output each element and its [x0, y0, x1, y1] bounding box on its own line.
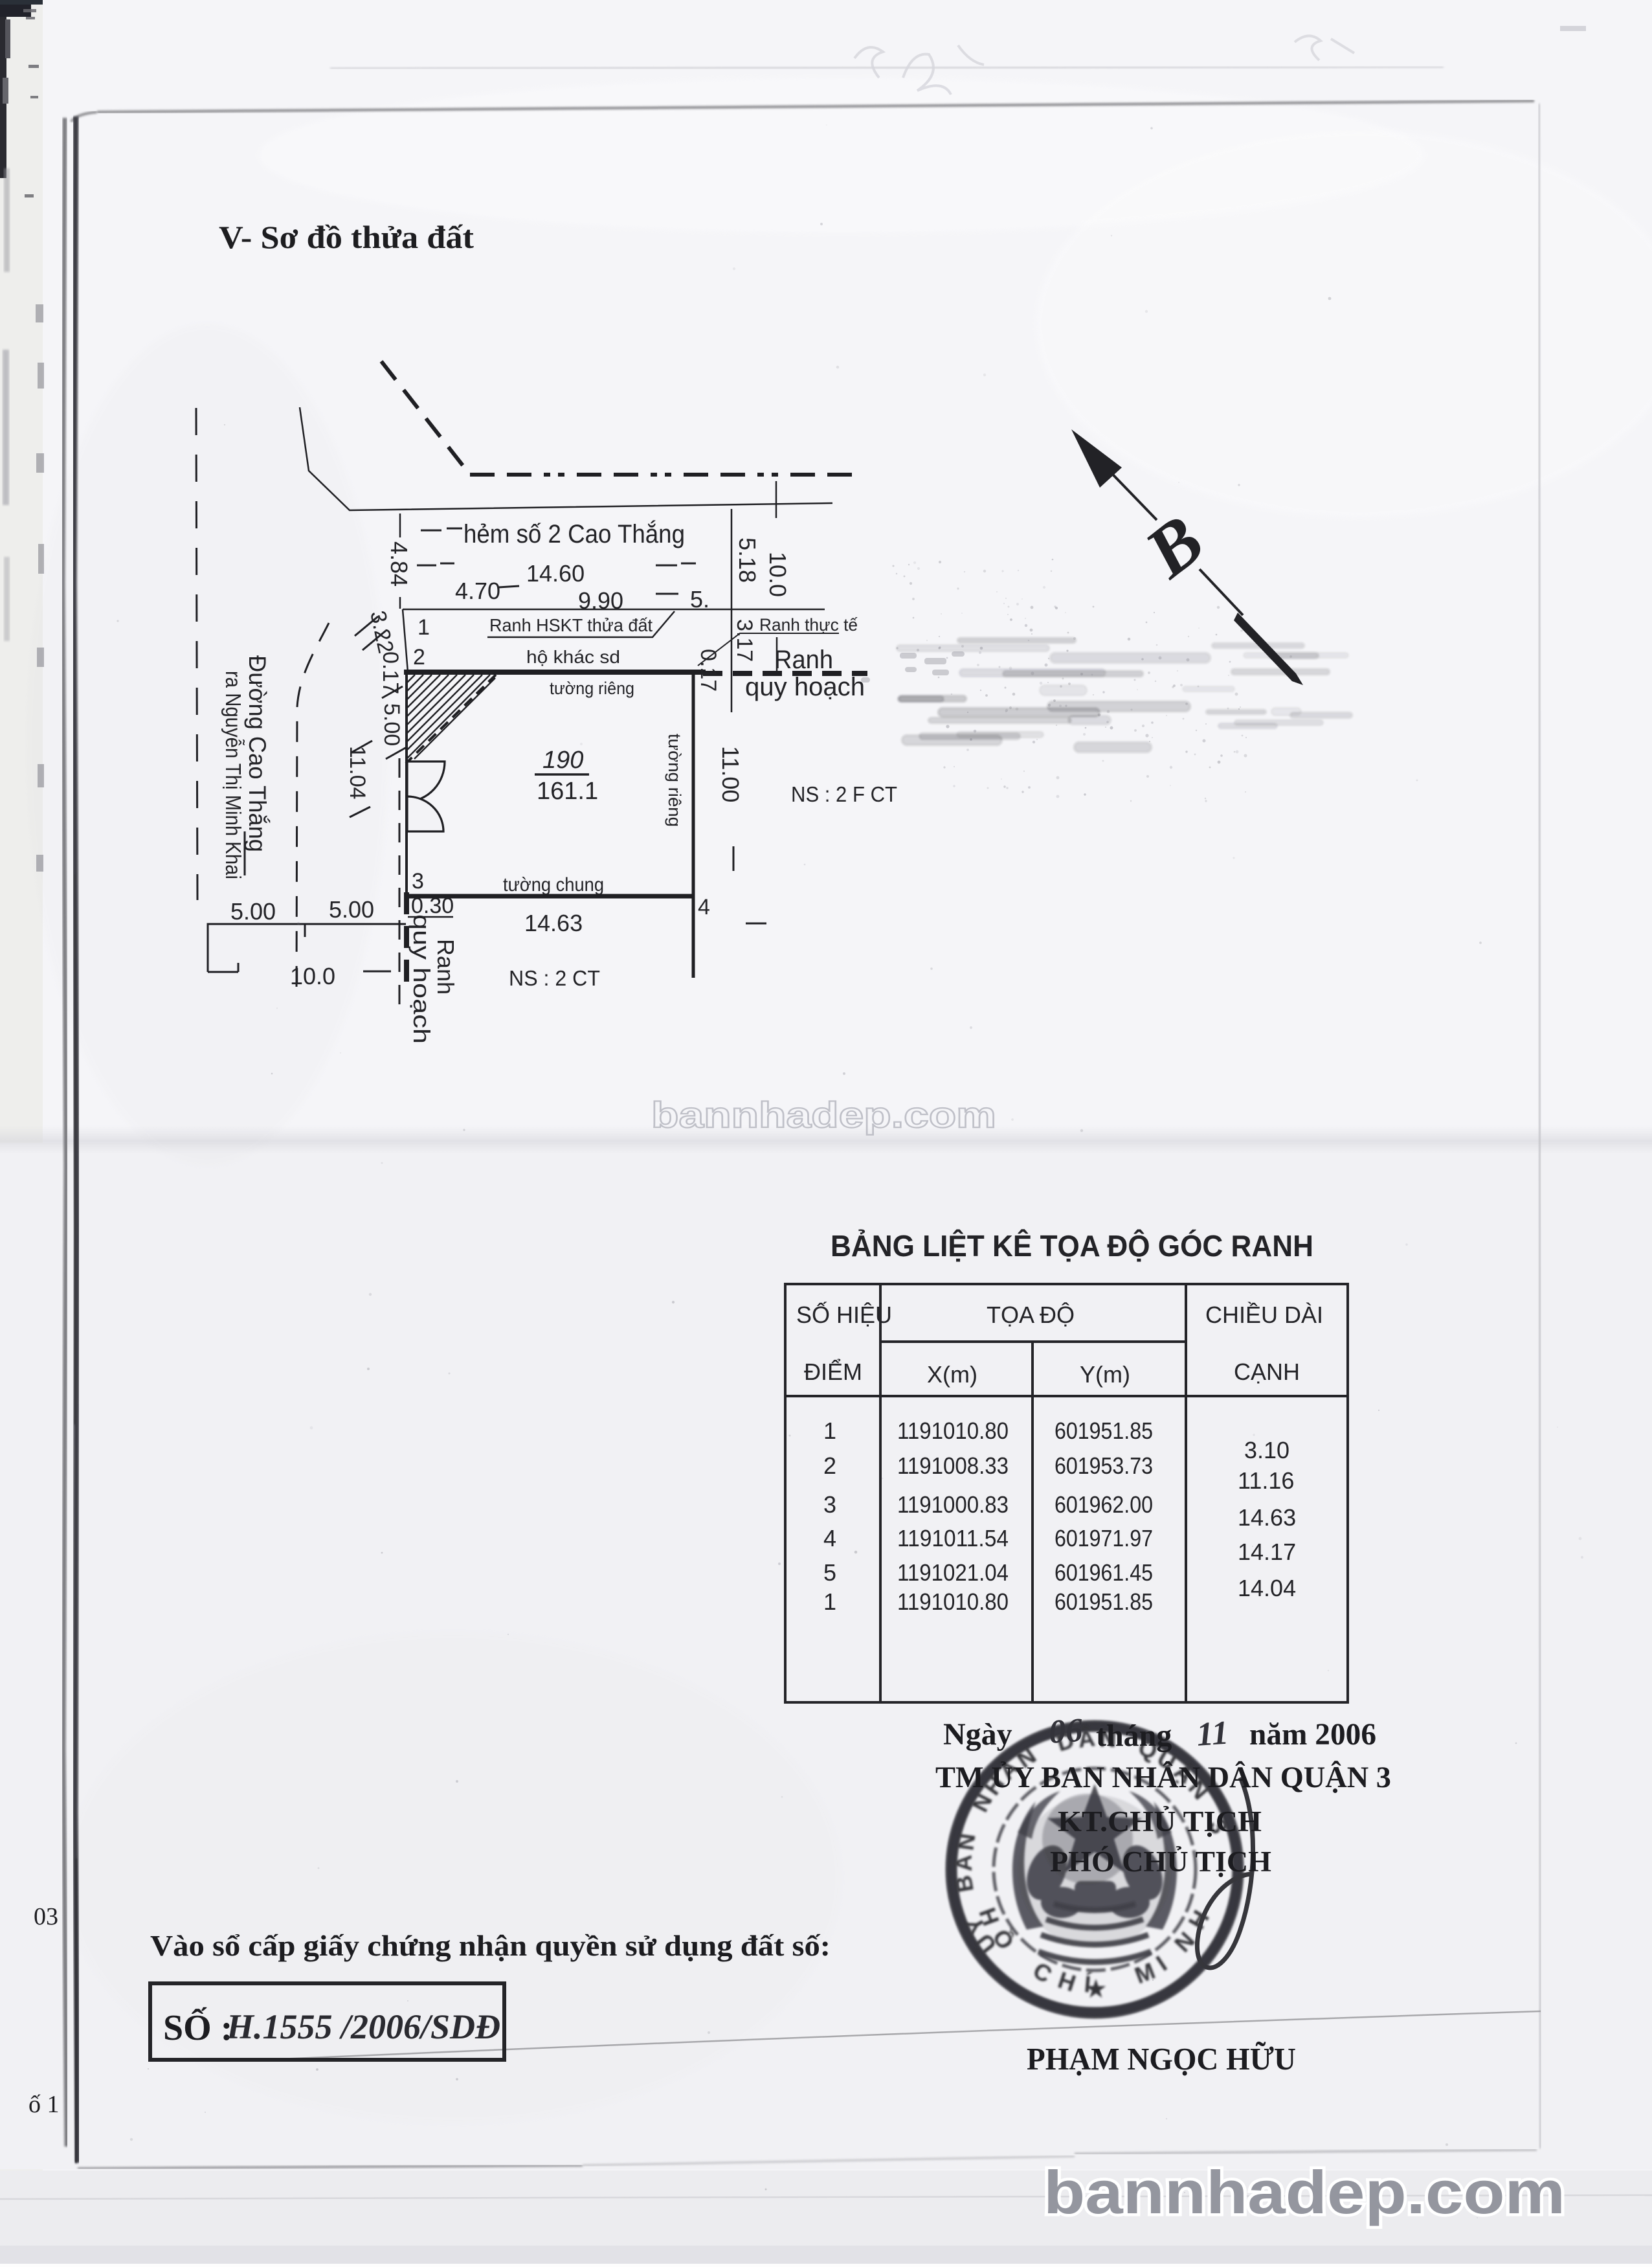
svg-text:tháng: tháng	[1096, 1719, 1172, 1753]
svg-text:1: 1	[823, 1417, 836, 1444]
svg-text:quy hoạch: quy hoạch	[745, 673, 865, 701]
svg-text:A: A	[950, 1855, 977, 1872]
svg-text:PHÓ CHỦ TỊCH: PHÓ CHỦ TỊCH	[1050, 1845, 1271, 1878]
svg-text:1191011.54: 1191011.54	[897, 1525, 1009, 1551]
svg-text:bannhadep.com: bannhadep.com	[651, 1094, 996, 1135]
svg-text:14.63: 14.63	[524, 910, 583, 936]
svg-text:161.1: 161.1	[537, 778, 598, 805]
svg-text:KT.CHỦ TỊCH: KT.CHỦ TỊCH	[1058, 1805, 1262, 1838]
svg-text:Ngày: Ngày	[943, 1717, 1012, 1752]
svg-text:1: 1	[823, 1588, 836, 1615]
svg-text:Ranh: Ranh	[432, 939, 459, 995]
svg-text:H.1555 /2006/SDĐ: H.1555 /2006/SDĐ	[226, 2007, 500, 2046]
svg-text:0.17: 0.17	[696, 649, 720, 692]
svg-text:ĐIỂM: ĐIỂM	[804, 1358, 862, 1385]
svg-text:Vào sổ cấp giấy chứng nhận quy: Vào sổ cấp giấy chứng nhận quyền sử dụng…	[150, 1929, 831, 1962]
svg-text:2: 2	[413, 645, 425, 670]
svg-text:4.84: 4.84	[386, 541, 412, 587]
svg-text:10.0: 10.0	[290, 963, 335, 989]
svg-text:SỐ :: SỐ :	[163, 2007, 232, 2048]
svg-text:190: 190	[542, 747, 583, 774]
svg-text:14.04: 14.04	[1238, 1575, 1296, 1601]
svg-text:5.18: 5.18	[734, 537, 761, 583]
svg-text:601962.00: 601962.00	[1055, 1491, 1153, 1518]
svg-text:4: 4	[698, 895, 710, 919]
svg-text:11.00: 11.00	[717, 746, 744, 802]
svg-text:1191008.33: 1191008.33	[897, 1452, 1009, 1479]
svg-text:hộ khác sd: hộ khác sd	[526, 647, 620, 667]
svg-text:1191010.80: 1191010.80	[897, 1417, 1009, 1444]
svg-text:Ranh HSKT thửa đất: Ranh HSKT thửa đất	[489, 615, 653, 635]
svg-text:Đường Cao Thắng: Đường Cao Thắng	[244, 655, 271, 852]
svg-text:bannhadep.com: bannhadep.com	[1044, 2158, 1565, 2226]
svg-text:Ranh thực tế: Ranh thực tế	[759, 615, 858, 635]
svg-text:14.17: 14.17	[1238, 1539, 1296, 1565]
svg-text:5.00: 5.00	[379, 703, 404, 746]
svg-text:5.00: 5.00	[230, 898, 276, 925]
svg-text:11.04: 11.04	[345, 746, 370, 800]
svg-text:tường chung: tường chung	[503, 874, 604, 896]
svg-text:601951.85: 601951.85	[1055, 1588, 1153, 1615]
svg-text:ra Nguyễn Thị Minh Khai: ra Nguyễn Thị Minh Khai	[221, 671, 245, 879]
svg-text:11: 11	[1196, 1715, 1230, 1754]
svg-text:1191021.04: 1191021.04	[897, 1559, 1009, 1586]
svg-text:3.17: 3.17	[732, 619, 757, 662]
svg-text:NS : 2 CT: NS : 2 CT	[509, 966, 600, 990]
svg-text:Ranh: Ranh	[774, 646, 833, 674]
svg-text:601961.45: 601961.45	[1055, 1559, 1153, 1586]
svg-text:1191010.80: 1191010.80	[897, 1588, 1009, 1615]
svg-text:03: 03	[34, 1903, 58, 1930]
svg-text:tường riêng: tường riêng	[550, 679, 634, 698]
svg-text:4.70: 4.70	[455, 578, 500, 604]
svg-text:601953.73: 601953.73	[1055, 1452, 1153, 1479]
svg-text:CHIỀU DÀI: CHIỀU DÀI	[1205, 1302, 1323, 1328]
svg-text:1: 1	[418, 615, 430, 640]
svg-text:11.16: 11.16	[1238, 1467, 1294, 1494]
svg-text:tường riêng: tường riêng	[665, 734, 684, 827]
svg-text:5: 5	[823, 1559, 836, 1586]
svg-text:601951.85: 601951.85	[1055, 1417, 1153, 1444]
svg-text:quy hoạch: quy hoạch	[408, 914, 435, 1044]
svg-text:1191000.83: 1191000.83	[897, 1491, 1009, 1518]
svg-text:3: 3	[412, 869, 424, 894]
svg-text:ố 1: ố 1	[28, 2091, 60, 2118]
svg-text:★: ★	[1084, 1975, 1108, 2003]
svg-text:5.00: 5.00	[329, 896, 374, 923]
svg-text:năm 2006: năm 2006	[1249, 1717, 1376, 1752]
svg-text:06: 06	[1047, 1712, 1084, 1751]
svg-text:10.0: 10.0	[765, 552, 791, 597]
svg-text:NS : 2 F CT: NS : 2 F CT	[791, 782, 897, 806]
svg-text:SỐ HIỆU: SỐ HIỆU	[796, 1301, 892, 1328]
svg-text:TM ỦY BAN NHÂN DÂN QUẬN 3: TM ỦY BAN NHÂN DÂN QUẬN 3	[935, 1761, 1391, 1794]
svg-text:3: 3	[823, 1491, 836, 1518]
svg-text:Y(m): Y(m)	[1080, 1361, 1130, 1388]
svg-text:3.10: 3.10	[1244, 1437, 1289, 1463]
svg-text:X(m): X(m)	[927, 1361, 977, 1388]
svg-text:14.60: 14.60	[526, 560, 585, 587]
svg-text:601971.97: 601971.97	[1055, 1525, 1153, 1551]
svg-text:2: 2	[823, 1452, 836, 1479]
svg-text:TỌA ĐỘ: TỌA ĐỘ	[987, 1302, 1075, 1328]
svg-text:PHẠM NGỌC HỮU: PHẠM NGỌC HỮU	[1027, 2041, 1296, 2077]
svg-text:V- Sơ đồ thửa đất: V- Sơ đồ thửa đất	[219, 219, 474, 255]
svg-text:4: 4	[823, 1525, 836, 1551]
svg-text:hẻm số 2 Cao Thắng: hẻm số 2 Cao Thắng	[463, 519, 685, 548]
svg-text:BẢNG LIỆT KÊ TỌA ĐỘ GÓC RANH: BẢNG LIỆT KÊ TỌA ĐỘ GÓC RANH	[831, 1229, 1313, 1263]
svg-text:CẠNH: CẠNH	[1234, 1359, 1300, 1385]
svg-text:14.63: 14.63	[1238, 1504, 1296, 1531]
